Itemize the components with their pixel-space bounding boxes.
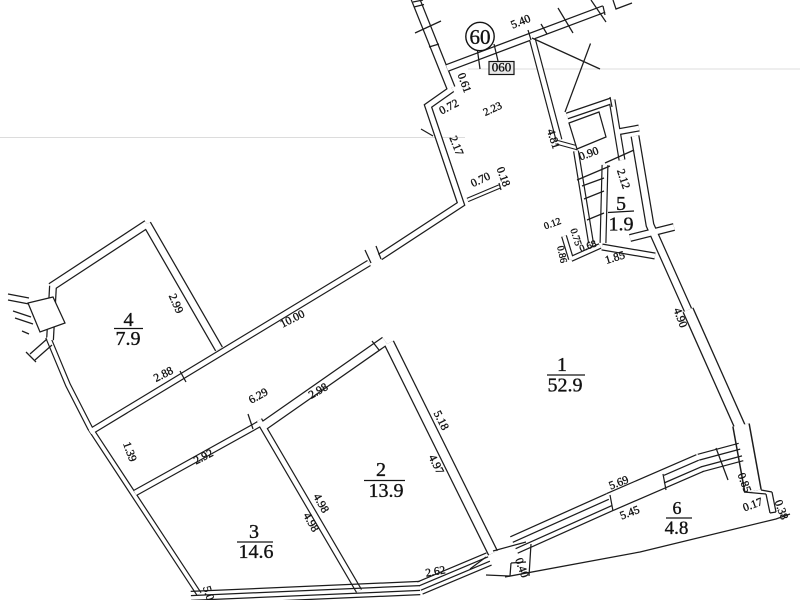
svg-text:52.9: 52.9 xyxy=(548,375,583,397)
svg-text:6: 6 xyxy=(673,498,682,518)
svg-text:1.9: 1.9 xyxy=(609,214,634,236)
svg-text:60: 60 xyxy=(470,25,491,49)
svg-text:2: 2 xyxy=(376,459,386,481)
svg-text:14.6: 14.6 xyxy=(239,541,274,563)
svg-text:4.8: 4.8 xyxy=(665,518,689,539)
svg-text:060: 060 xyxy=(492,60,512,75)
svg-text:13.9: 13.9 xyxy=(369,480,404,502)
svg-text:7.9: 7.9 xyxy=(116,328,141,350)
svg-text:3: 3 xyxy=(249,521,259,543)
svg-text:1: 1 xyxy=(557,354,567,376)
